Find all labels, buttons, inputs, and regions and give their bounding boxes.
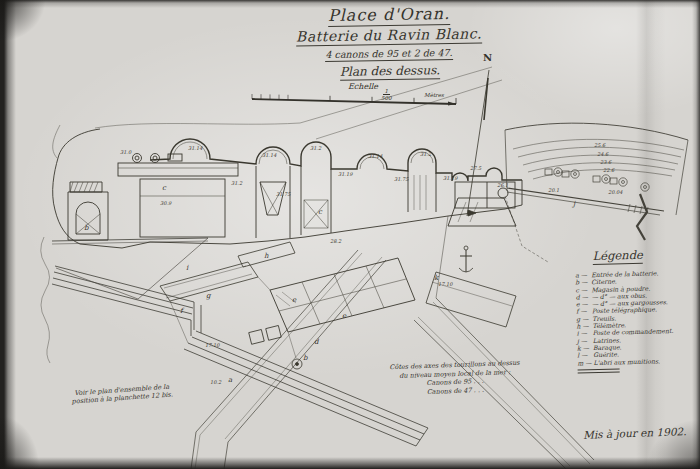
plan-letters-label: b <box>303 354 308 362</box>
contour-labels-label: 25.6 <box>594 142 606 148</box>
plan-letters-label: g <box>206 292 212 300</box>
scanned-plan-sheet: .spot{font:italic 5px "DejaVu Serif",ser… <box>0 0 700 469</box>
plan-letters-label: b <box>84 224 89 232</box>
scale-label: Echelle1500 <box>348 82 392 101</box>
gun-symbols <box>545 168 649 191</box>
spot-elevations-label: 31.0 <box>120 149 132 155</box>
spot-elevations-label: 31.14 <box>262 152 277 158</box>
spot-elevations-label: 31.14 <box>188 145 203 151</box>
plan-letters-label: f <box>180 307 185 315</box>
spot-elevations-label: 31.2 <box>420 151 432 157</box>
spot-elevations-label: 31.2 <box>310 145 322 151</box>
contour-labels-label: 24.6 <box>597 151 609 157</box>
contour-labels-label: 22.6 <box>603 167 615 173</box>
plan-letters-label: e <box>292 296 297 304</box>
battery-plan-linework <box>53 129 522 248</box>
north-arrow <box>459 70 489 272</box>
legend: Légende a — Entrée de la batterie.b — Ci… <box>574 242 695 373</box>
contour-labels-label: 23.6 <box>600 159 612 165</box>
armament-subtitle: 4 canons de 95 et 2 de 47. <box>300 46 478 60</box>
spot-elevations-label: 31.2 <box>231 180 243 186</box>
scale-unit-label: Mètres <box>424 92 444 98</box>
plan-letters-label: j <box>571 200 576 208</box>
spot-elevations-label: 20.1 <box>548 187 559 193</box>
spot-elevations-label: 31.75 <box>394 176 409 182</box>
spot-elevations-label: 17.10 <box>438 281 453 287</box>
scale-fraction: 1500 <box>381 88 392 101</box>
buildings-linework <box>160 242 516 369</box>
plan-letters-label: e <box>342 312 347 320</box>
plan-letters-label: c <box>318 208 323 216</box>
plan-letters: bccighfeedabkj <box>84 184 576 384</box>
spot-elevations-label: 27.5 <box>470 165 482 171</box>
elevation-note: Côtes des axes des tourillons au dessus … <box>385 359 524 398</box>
plan-letters-label: i <box>186 264 189 272</box>
spot-elevations-label: 28.2 <box>330 238 342 244</box>
spot-elevations-label: 31.19 <box>443 175 458 181</box>
spot-elevations-label: 20.04 <box>608 189 623 195</box>
plan-title: Place d'Oran. <box>305 4 473 26</box>
legend-items: a — Entrée de la batterie.b — Citerne.c … <box>575 268 695 366</box>
spot-elevations-label: 26.1 <box>497 182 508 188</box>
contour-labels: 25.624.623.622.6 <box>594 142 615 173</box>
legend-title: Légende <box>592 248 643 265</box>
spot-elevations-label: 17.10 <box>205 342 220 348</box>
plan-letters-label: d <box>314 338 319 346</box>
spot-elevations-label: 31.19 <box>338 171 353 177</box>
spot-elevations-label: 31.14 <box>368 153 383 159</box>
spot-elevations-label: 31.75 <box>276 191 291 197</box>
spot-elevations-label: 10.2 <box>210 379 222 385</box>
north-label: N <box>483 52 492 63</box>
plan-letters-label: h <box>264 252 269 260</box>
plan-letters-label: a <box>228 376 233 384</box>
plan-type-label: Plan des dessus. <box>326 63 454 79</box>
battery-title: Batterie du Ravin Blanc. <box>283 25 495 45</box>
plan-letters-label: c <box>162 184 167 192</box>
spot-elevations-label: 30.9 <box>160 200 172 206</box>
